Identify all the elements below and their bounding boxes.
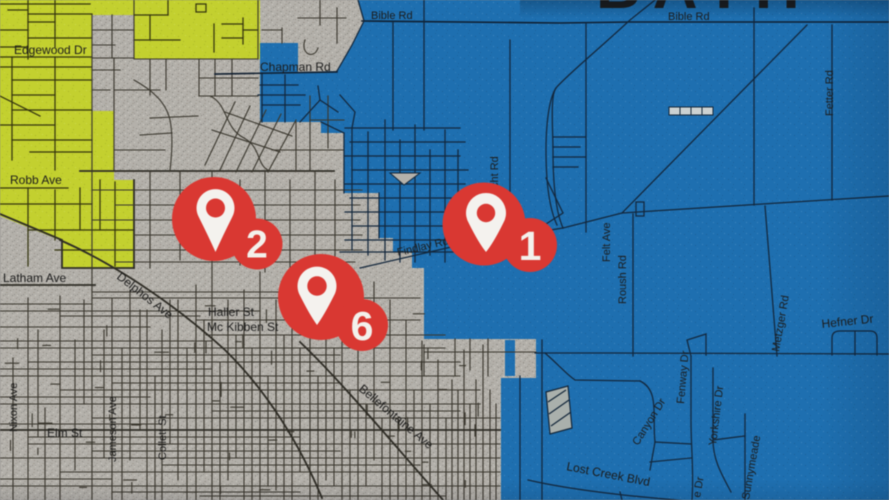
svg-text:Jameson Ave: Jameson Ave [107,396,119,462]
svg-text:Haller St: Haller St [208,305,255,319]
svg-text:6: 6 [351,303,374,349]
svg-text:Nixon Ave: Nixon Ave [8,383,20,432]
svg-text:1: 1 [519,223,542,269]
svg-text:Latham Ave: Latham Ave [3,271,66,285]
svg-text:Collett St: Collett St [157,415,169,460]
svg-text:Roush Rd: Roush Rd [617,255,629,304]
svg-text:Chapman Rd: Chapman Rd [260,60,331,74]
svg-text:Edgewood Dr: Edgewood Dr [14,43,87,57]
svg-text:Felt Ave: Felt Ave [601,222,613,262]
svg-text:2: 2 [246,224,268,267]
svg-text:Elm St: Elm St [47,426,83,440]
svg-text:Bible Rd: Bible Rd [371,10,413,22]
svg-text:Robb Ave: Robb Ave [10,173,62,187]
svg-text:Mc Kibben St: Mc Kibben St [207,320,279,334]
